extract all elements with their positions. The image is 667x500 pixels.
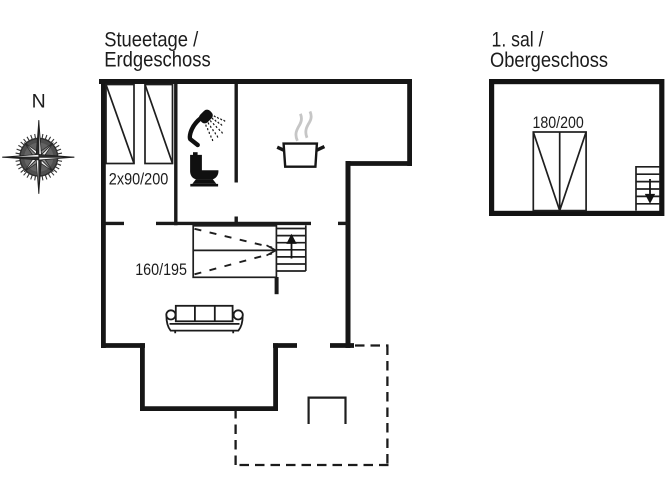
svg-text:180/200: 180/200	[533, 114, 584, 132]
svg-text:Erdgeschoss: Erdgeschoss	[104, 49, 211, 72]
svg-text:Obergeschoss: Obergeschoss	[490, 49, 608, 72]
svg-text:160/195: 160/195	[135, 260, 187, 279]
svg-text:2x90/200: 2x90/200	[109, 169, 169, 188]
svg-text:N: N	[32, 91, 46, 113]
